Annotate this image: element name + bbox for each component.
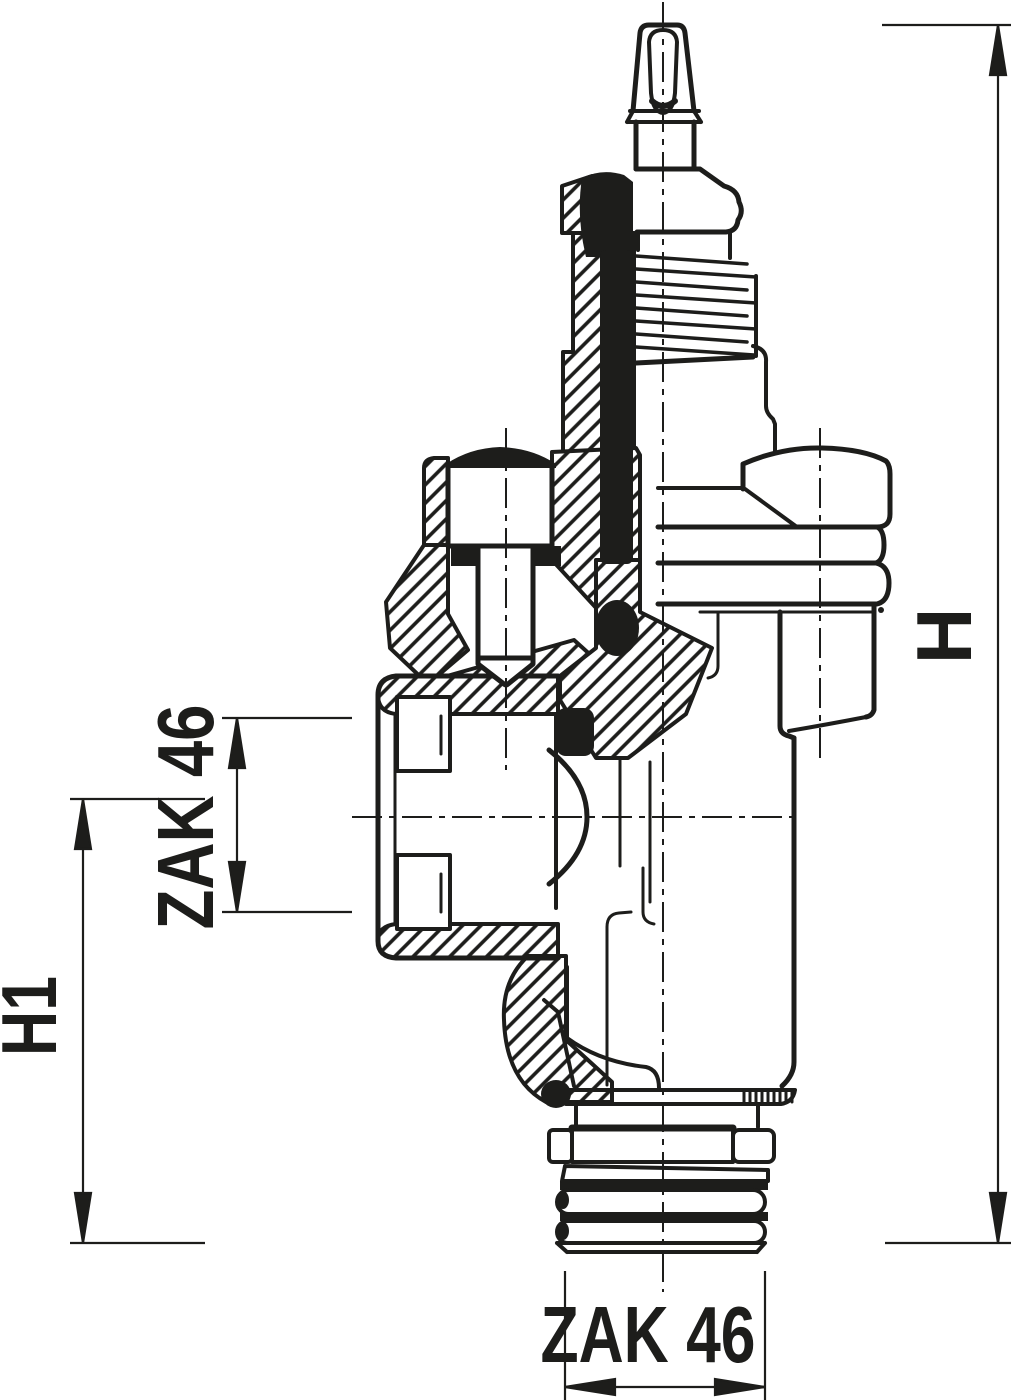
dimension-zak46-left xyxy=(222,718,352,912)
flange-disc-3 xyxy=(658,563,889,604)
stem-thread-lines xyxy=(636,256,756,355)
zak-left-arrow-down xyxy=(229,862,245,912)
bolt-washer-right xyxy=(534,546,561,566)
tail-band xyxy=(576,1104,758,1127)
bolt-boss-hatch-left xyxy=(424,458,448,545)
stem-lip-seal xyxy=(580,172,633,257)
bolt-head-cap xyxy=(446,447,556,468)
section-hatching xyxy=(378,176,712,1102)
stem-neck xyxy=(638,232,730,258)
h-label: H xyxy=(900,608,988,664)
spindle-shaft xyxy=(636,122,694,169)
h1-arrow-up xyxy=(75,799,91,849)
tail-collar xyxy=(572,1128,733,1162)
stem-thread-bottom xyxy=(636,357,753,363)
zak46-bottom-label: ZAK 46 xyxy=(541,1290,756,1379)
base-plate-knurling xyxy=(744,1091,792,1103)
zak-bottom-arrow-right xyxy=(715,1379,765,1395)
h-arrow-down xyxy=(990,1193,1006,1243)
flange-chamfer xyxy=(745,489,797,527)
spindle-collar xyxy=(636,169,741,232)
valve-technical-drawing-page: H H1 ZAK 46 ZAK 46 xyxy=(0,0,1011,1400)
bolt-washer-left xyxy=(451,546,477,566)
h-arrow-up xyxy=(990,25,1006,75)
stem-lower xyxy=(753,346,775,452)
tail-bottom xyxy=(557,1243,765,1252)
h1-label: H1 xyxy=(0,976,73,1056)
funnel-hatch xyxy=(504,956,612,1102)
tail-tab-left xyxy=(549,1130,572,1162)
stem-packing-strip xyxy=(600,250,633,564)
zak46-left-label: ZAK 46 xyxy=(141,705,230,930)
stem-seal-ring xyxy=(595,600,639,656)
flange-edge-tick xyxy=(878,607,884,613)
tail-thread-3 xyxy=(557,1221,765,1243)
tail-thread-1 xyxy=(562,1166,768,1181)
side-boss-left-edge xyxy=(780,612,794,738)
valve-seat-seal xyxy=(556,708,594,756)
body-right-edge xyxy=(782,738,794,1086)
side-boss-bottom xyxy=(789,717,866,731)
bolt-head xyxy=(448,464,552,546)
valve-cross-section-drawing: H H1 ZAK 46 ZAK 46 xyxy=(0,0,1011,1400)
zak-bottom-arrow-left xyxy=(565,1379,615,1395)
tail-tab-right xyxy=(733,1130,774,1162)
side-boss-right-edge xyxy=(866,604,874,717)
tail-thread-2 xyxy=(557,1190,765,1214)
h1-arrow-down xyxy=(75,1193,91,1243)
flange-disc-2 xyxy=(658,527,884,563)
zak-left-arrow-up xyxy=(229,718,245,768)
